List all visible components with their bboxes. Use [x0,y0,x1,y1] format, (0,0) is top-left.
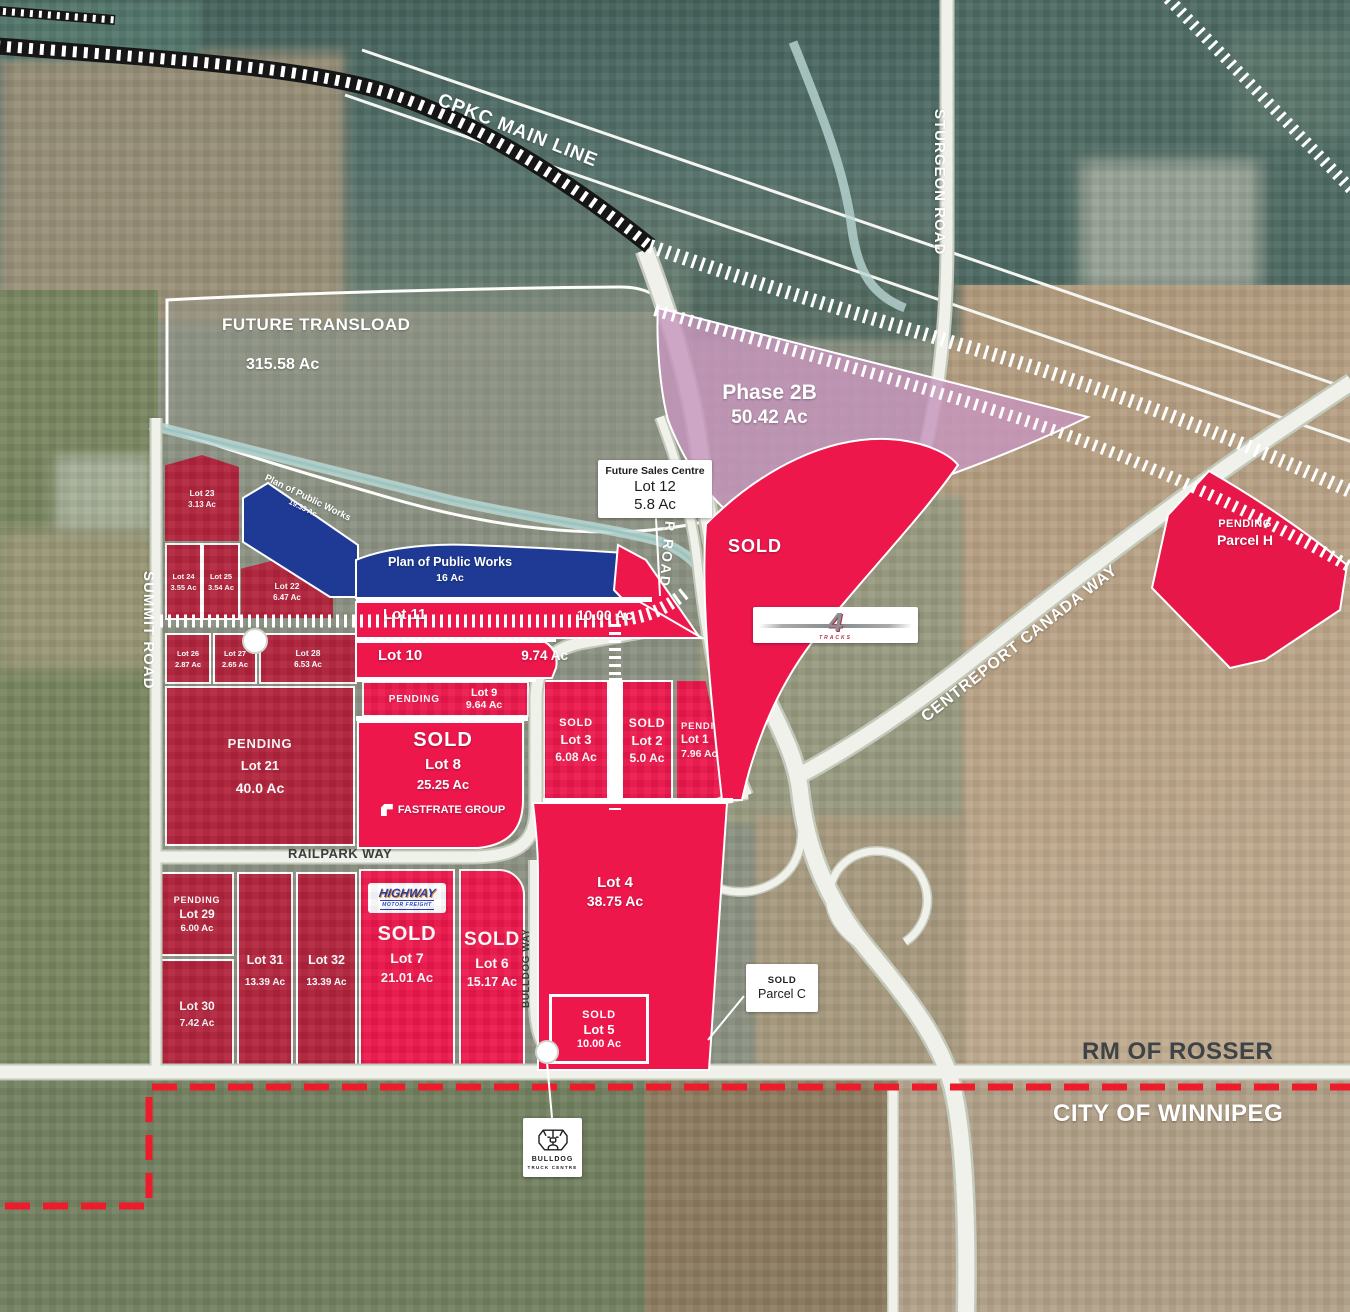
sales-centre-acres: 5.8 Ac [634,496,676,513]
future-sales-centre-box: Future Sales Centre Lot 12 5.8 Ac [598,460,712,518]
parcel-c-name: Parcel C [758,987,806,1001]
leader-lines [547,518,744,1118]
sales-centre-lot: Lot 12 [634,478,676,495]
four-tracks-logo: 4 TRACKS [753,607,918,643]
bulldog-text: BULLDOG [532,1156,574,1163]
railpark-site-map: Lot 23 3.13 Ac Lot 24 3.55 Ac Lot 25 3.5… [0,0,1350,1312]
city-boundary-dashed-line [5,1087,1350,1206]
sales-centre-title: Future Sales Centre [605,465,704,477]
bulldog-icon [535,1126,571,1154]
parcel-c-box: SOLD Parcel C [746,964,818,1012]
cul-de-sac-circle [243,629,267,653]
cul-de-sac-circle [536,1041,558,1063]
four-tracks-numeral: 4 [753,608,918,637]
overlay-layer [0,0,1350,1312]
parcel-c-status: SOLD [768,975,796,986]
four-tracks-logo-box: 4 TRACKS [753,607,918,643]
bulldog-truck-centre-box: BULLDOG TRUCK CENTRE [523,1118,582,1177]
four-tracks-text: TRACKS [753,635,918,641]
bulldog-subtext: TRUCK CENTRE [528,1165,578,1170]
